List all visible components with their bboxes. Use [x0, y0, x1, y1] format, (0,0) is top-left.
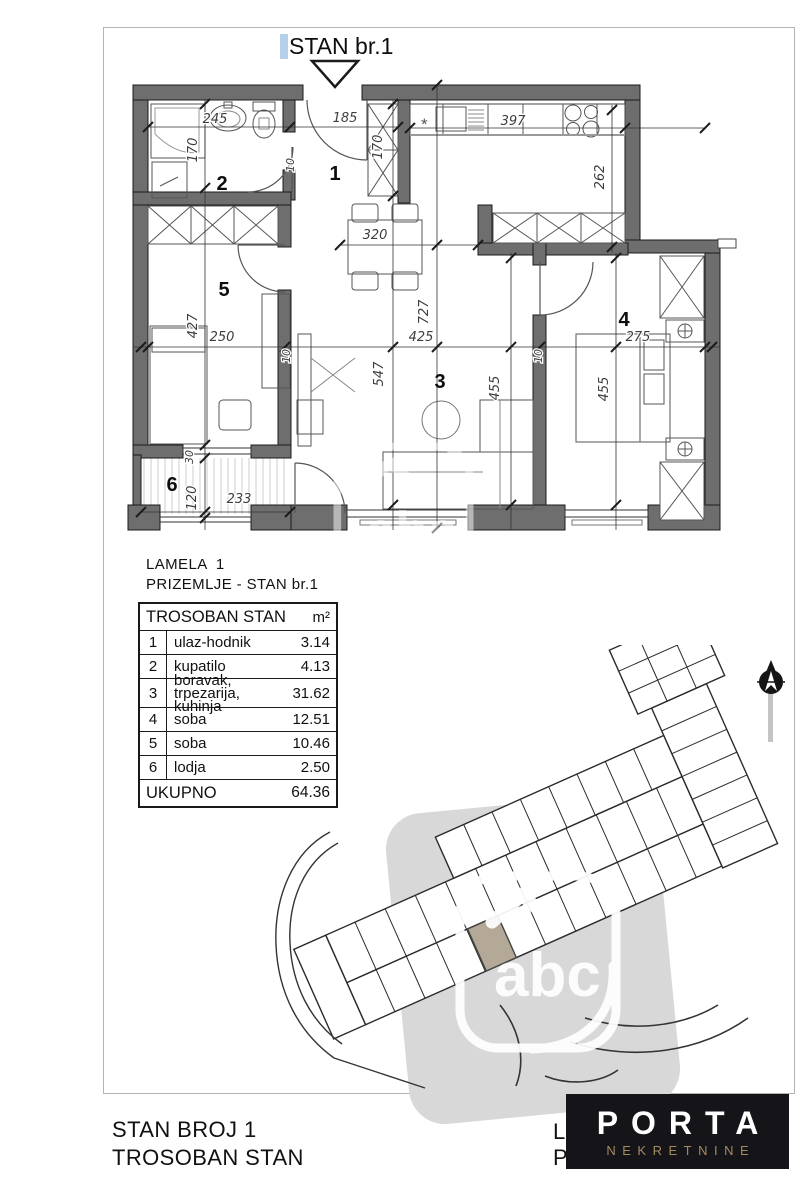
row-name: soba — [167, 732, 268, 755]
svg-text:10: 10 — [280, 349, 293, 363]
compass-icon — [757, 660, 785, 742]
apartment-title: STAN br.1 — [289, 33, 393, 60]
room-label-3: 3 — [434, 371, 445, 393]
row-name: soba — [167, 708, 268, 731]
svg-text:455: 455 — [488, 376, 503, 401]
table-row: 3 boravak, trpezarija, kuhinja 31.62 — [140, 678, 336, 707]
row-name: lodja — [167, 756, 268, 779]
table-header-unit: m² — [313, 609, 337, 626]
row-number: 4 — [140, 708, 167, 731]
row-area: 4.13 — [268, 655, 336, 678]
table-row: 1 ulaz-hodnik 3.14 — [140, 630, 336, 654]
watermark-siteplan: abc — [450, 866, 646, 1064]
row-area: 12.51 — [268, 708, 336, 731]
svg-text:185: 185 — [333, 111, 358, 126]
table-row: 6 lodja 2.50 — [140, 755, 336, 779]
watermark-floorplan: abc — [328, 438, 496, 606]
svg-text:233: 233 — [227, 492, 252, 507]
svg-text:425: 425 — [409, 330, 434, 345]
table-total-row: UKUPNO 64.36 — [140, 779, 336, 806]
logo-name: PORTA — [584, 1106, 772, 1140]
svg-text:245: 245 — [203, 112, 228, 127]
watermark-text: abc — [494, 941, 601, 1010]
footer-apartment-type: TROSOBAN STAN — [112, 1145, 304, 1171]
row-name: boravak, trpezarija, kuhinja — [167, 679, 268, 707]
table-row: 4 soba 12.51 — [140, 707, 336, 731]
entrance-arrow-icon — [312, 61, 358, 87]
svg-text:170: 170 — [371, 135, 386, 160]
page-title: STAN br.1 — [280, 33, 393, 60]
bed-icon — [150, 326, 207, 444]
svg-text:427: 427 — [186, 313, 201, 339]
area-table: TROSOBAN STAN m² 1 ulaz-hodnik 3.14 2 ku… — [138, 602, 338, 808]
tv-panel-icon — [298, 334, 311, 446]
svg-text:320: 320 — [363, 228, 388, 243]
svg-text:455: 455 — [597, 377, 612, 402]
floor-caption: PRIZEMLJE - STAN br.1 — [146, 576, 318, 593]
svg-text:727: 727 — [417, 299, 432, 325]
svg-text:170: 170 — [186, 138, 201, 163]
boiler-symbol: * — [421, 115, 428, 134]
footer-apartment-number: STAN BROJ 1 — [112, 1117, 257, 1143]
watermark-text: abc — [366, 501, 457, 560]
row-number: 1 — [140, 631, 167, 654]
wall-stub — [718, 239, 736, 248]
bedroom5-furniture — [150, 294, 290, 444]
table-header: TROSOBAN STAN m² — [140, 604, 336, 630]
lamela-caption: LAMELA 1 — [146, 556, 225, 573]
svg-text:10: 10 — [284, 158, 297, 172]
row-name: ulaz-hodnik — [167, 631, 268, 654]
table-header-name: TROSOBAN STAN — [140, 608, 313, 627]
room-label-1: 1 — [329, 163, 340, 185]
room-label-2: 2 — [216, 173, 227, 195]
svg-text:250: 250 — [210, 330, 235, 345]
svg-text:397: 397 — [501, 114, 527, 129]
row-area: 3.14 — [268, 631, 336, 654]
table-row: 5 soba 10.46 — [140, 731, 336, 755]
row-number: 2 — [140, 655, 167, 678]
logo-subtitle: NEKRETNINE — [600, 1143, 755, 1158]
svg-text:120: 120 — [185, 486, 200, 511]
row-area: 2.50 — [268, 756, 336, 779]
svg-text:275: 275 — [626, 330, 651, 345]
total-label: UKUPNO — [140, 784, 291, 803]
room-label-5: 5 — [218, 279, 229, 301]
row-number: 6 — [140, 756, 167, 779]
row-number: 3 — [140, 679, 167, 707]
room-label-6: 6 — [166, 474, 177, 496]
svg-text:10: 10 — [532, 349, 545, 363]
row-number: 5 — [140, 732, 167, 755]
svg-text:30: 30 — [183, 450, 196, 464]
svg-text:262: 262 — [593, 165, 608, 190]
row-area: 31.62 — [268, 679, 336, 707]
round-table-icon — [422, 401, 460, 439]
bed-icon — [576, 334, 670, 442]
chair-icon — [219, 400, 251, 430]
footer-hidden-text-1: L — [553, 1119, 565, 1145]
agency-logo: PORTA NEKRETNINE — [566, 1094, 789, 1169]
svg-text:547: 547 — [372, 361, 387, 387]
room-label-4: 4 — [618, 309, 630, 331]
total-value: 64.36 — [291, 784, 336, 802]
selection-cursor — [280, 34, 288, 59]
row-area: 10.46 — [268, 732, 336, 755]
